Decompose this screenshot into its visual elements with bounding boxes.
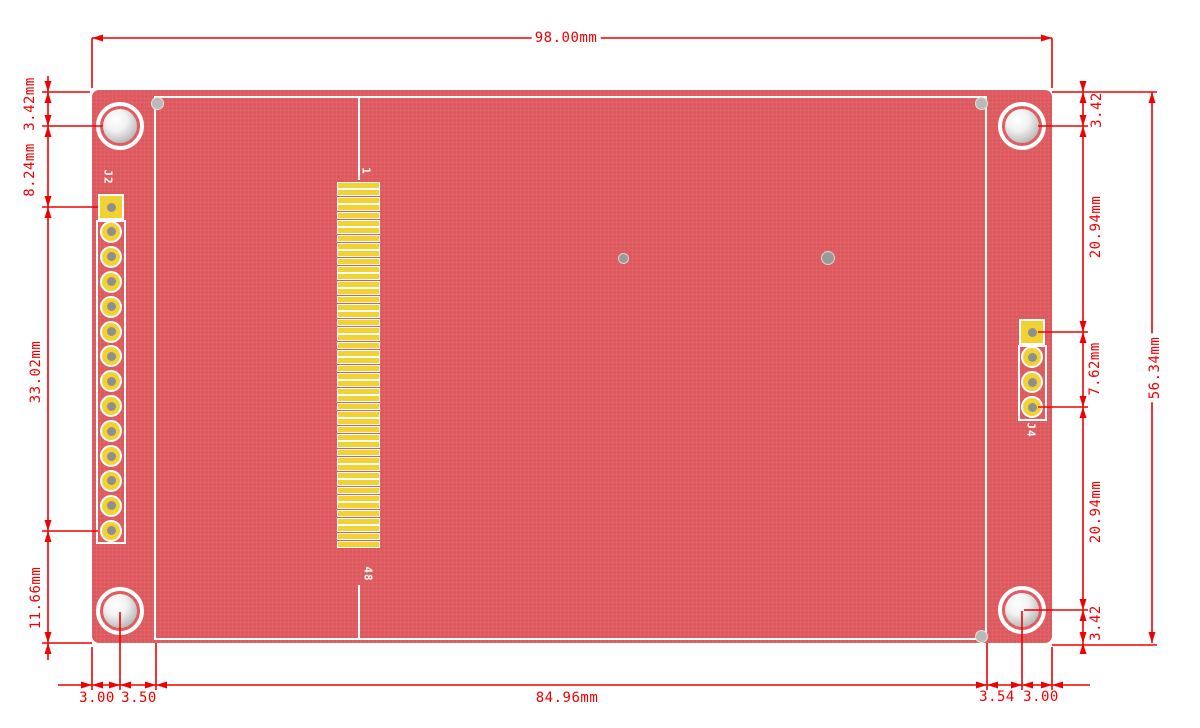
fpc-pad-16 [337,296,380,303]
dim-r-hole-to-bottom: 3.42 [1089,605,1103,641]
mounting-hole-bottom-right [998,586,1046,634]
fpc-pad-23 [337,350,380,357]
pad-drill [107,377,116,386]
pad-drill [107,402,116,411]
j2-pad-12 [100,470,122,492]
fpc-pad-6 [337,220,380,227]
fiducial-mark-bottom-right [975,630,988,643]
dimension-arrowhead [1022,682,1033,689]
dimension-arrowhead [1041,682,1052,689]
pad-drill [107,227,116,236]
dim-bl-hole-to-disp: 3.50 [121,691,157,705]
pad-drill [1028,328,1037,337]
fpc-pin48-label: 48 [363,566,374,581]
dim-r-j4-to-hole: 20.94mm [1089,481,1103,544]
fpc-pad-15 [337,288,380,295]
fpc-pad-31 [337,411,380,418]
dim-l-j2-to-bottom: 11.66mm [29,567,43,630]
pad-drill [107,501,116,510]
dimension-arrowhead [45,196,52,207]
fpc-pad-44 [337,510,380,517]
fpc-pad-47 [337,533,380,540]
fpc-pad-1 [337,182,380,189]
fiducial-mark-top-right [975,97,988,110]
dimension-arrowhead [1041,35,1052,42]
pad-drill [107,277,116,286]
fpc-pad-13 [337,273,380,280]
pad-drill [107,352,116,361]
fpc-pad-9 [337,243,380,250]
dim-br-disp-to-hole: 3.54 [979,690,1015,704]
fpc-pad-41 [337,487,380,494]
fpc-pad-28 [337,388,380,395]
fpc-pad-5 [337,212,380,219]
dim-l-hole-to-j2: 8.24mm [23,143,37,197]
fpc-pad-40 [337,479,380,486]
j2-pad-1 [98,194,124,220]
pad-drill [1028,403,1037,412]
drill-hole-small [618,253,629,264]
fpc-pad-43 [337,502,380,509]
fpc-pad-38 [337,464,380,471]
mounting-hole-drill [1005,593,1039,627]
dimension-arrowhead [45,531,52,542]
dim-r-j4-span: 7.62mm [1088,342,1102,396]
display-area-outline [154,96,987,640]
dimension-arrowhead [45,207,52,218]
j4-reference-label: J4 [1026,422,1037,437]
fpc-pad-8 [337,235,380,242]
j4-pad-1 [1019,319,1045,345]
dimension-arrowhead [1080,599,1087,610]
fpc-pad-25 [337,365,380,372]
fpc-pad-7 [337,227,380,234]
fpc-pad-3 [337,197,380,204]
mounting-hole-drill [103,109,137,143]
dimension-arrowhead [1080,407,1087,418]
mounting-hole-top-right [998,102,1046,150]
pad-drill [107,452,116,461]
fpc-pin1-label: 1 [361,167,372,175]
dimension-arrowhead [1080,321,1087,332]
dim-br-hole-to-edge: 3.00 [1023,690,1059,704]
fpc-pad-37 [337,457,380,464]
dim-l-j2-span: 33.02mm [29,341,43,404]
dimension-arrowhead [45,115,52,126]
pad-drill [107,476,116,485]
j2-pad-10 [100,420,122,442]
fpc-pad-39 [337,472,380,479]
dimension-arrowhead [1080,610,1087,621]
fpc-pad-21 [337,334,380,341]
fpc-pad-30 [337,403,380,410]
dim-board-height: 56.34mm [1148,334,1162,403]
fpc-pad-18 [337,311,380,318]
dimension-arrowhead [45,520,52,531]
fpc-pad-20 [337,327,380,334]
dimension-arrowhead [1149,632,1156,643]
mounting-hole-drill [103,594,137,628]
j2-reference-label: J2 [103,169,114,184]
dimension-arrowhead [92,35,103,42]
dimension-arrowhead [1080,92,1087,103]
dimension-arrowhead [120,682,131,689]
dimension-arrowhead [109,682,120,689]
fiducial-mark-top-left [151,97,164,110]
dimension-arrowhead [1080,396,1087,407]
fpc-pad-29 [337,395,380,402]
fpc-pad-33 [337,426,380,433]
j2-pad-13 [100,495,122,517]
j2-pad-5 [100,296,122,318]
fpc-pad-45 [337,518,380,525]
fpc-pad-27 [337,380,380,387]
dim-r-hole-to-j4: 20.94mm [1089,196,1103,259]
fpc-pad-17 [337,304,380,311]
mounting-hole-drill [1005,109,1039,143]
fpc-pad-11 [337,258,380,265]
j2-pad-14 [100,520,122,542]
fpc-silkscreen-line-bottom [358,585,360,640]
pad-drill [1028,378,1037,387]
fpc-pad-32 [337,418,380,425]
dimension-arrowhead [45,81,52,92]
dimension-arrowhead [976,682,987,689]
fpc-pad-4 [337,204,380,211]
dimension-arrowhead [1080,126,1087,137]
j2-pad-3 [100,246,122,268]
drill-hole-large [821,251,835,265]
fpc-pad-48 [337,541,380,548]
dimension-arrowhead [45,643,52,654]
dim-r-top-to-hole: 3.42 [1090,92,1104,128]
fpc-pad-24 [337,357,380,364]
dim-bl-edge-to-hole: 3.00 [79,691,115,705]
fpc-pad-36 [337,449,380,456]
dimension-arrowhead [1080,643,1087,654]
dimension-arrowhead [92,682,103,689]
j4-pad-2 [1021,346,1043,368]
j2-pad-2 [100,221,122,243]
dim-display-width: 84.96mm [536,691,599,705]
dimension-arrowhead [45,92,52,103]
pad-drill [107,427,116,436]
dimension-arrowhead [81,682,92,689]
dimension-arrowhead [1080,332,1087,343]
j2-pad-4 [100,271,122,293]
fpc-pad-34 [337,434,380,441]
mounting-hole-bottom-left [96,587,144,635]
dimension-arrowhead [45,632,52,643]
fpc-pad-46 [337,525,380,532]
fpc-pad-19 [337,319,380,326]
pcb-dimension-drawing: J2 J4 1 48 98.00mm 84.96mm 3.00 3.50 3.5… [0,0,1200,728]
fpc-pad-35 [337,441,380,448]
pad-drill [107,252,116,261]
fpc-pad-12 [337,266,380,273]
dimension-arrowhead [1080,81,1087,92]
fpc-pad-14 [337,281,380,288]
fpc-pad-2 [337,189,380,196]
fpc-pad-10 [337,250,380,257]
pad-drill [107,526,116,535]
dimension-arrowhead [45,126,52,137]
j2-pad-6 [100,321,122,343]
pad-drill [1028,353,1037,362]
j2-pad-11 [100,445,122,467]
dimension-arrowhead [1080,632,1087,643]
fpc-pad-26 [337,373,380,380]
pad-drill [107,327,116,336]
dimension-arrowhead [1052,682,1063,689]
fpc-pad-42 [337,495,380,502]
dimension-arrowhead [1149,92,1156,103]
dim-board-width: 98.00mm [532,31,601,45]
mounting-hole-top-left [96,102,144,150]
pad-drill [107,302,116,311]
fpc-pad-22 [337,342,380,349]
dimension-arrowhead [1080,115,1087,126]
dimension-arrowhead [156,682,167,689]
dimension-arrowhead [1011,682,1022,689]
dimension-arrowhead [987,682,998,689]
dimension-arrowhead [145,682,156,689]
dim-l-top-to-hole: 3.42mm [23,77,37,131]
pad-drill [107,203,116,212]
